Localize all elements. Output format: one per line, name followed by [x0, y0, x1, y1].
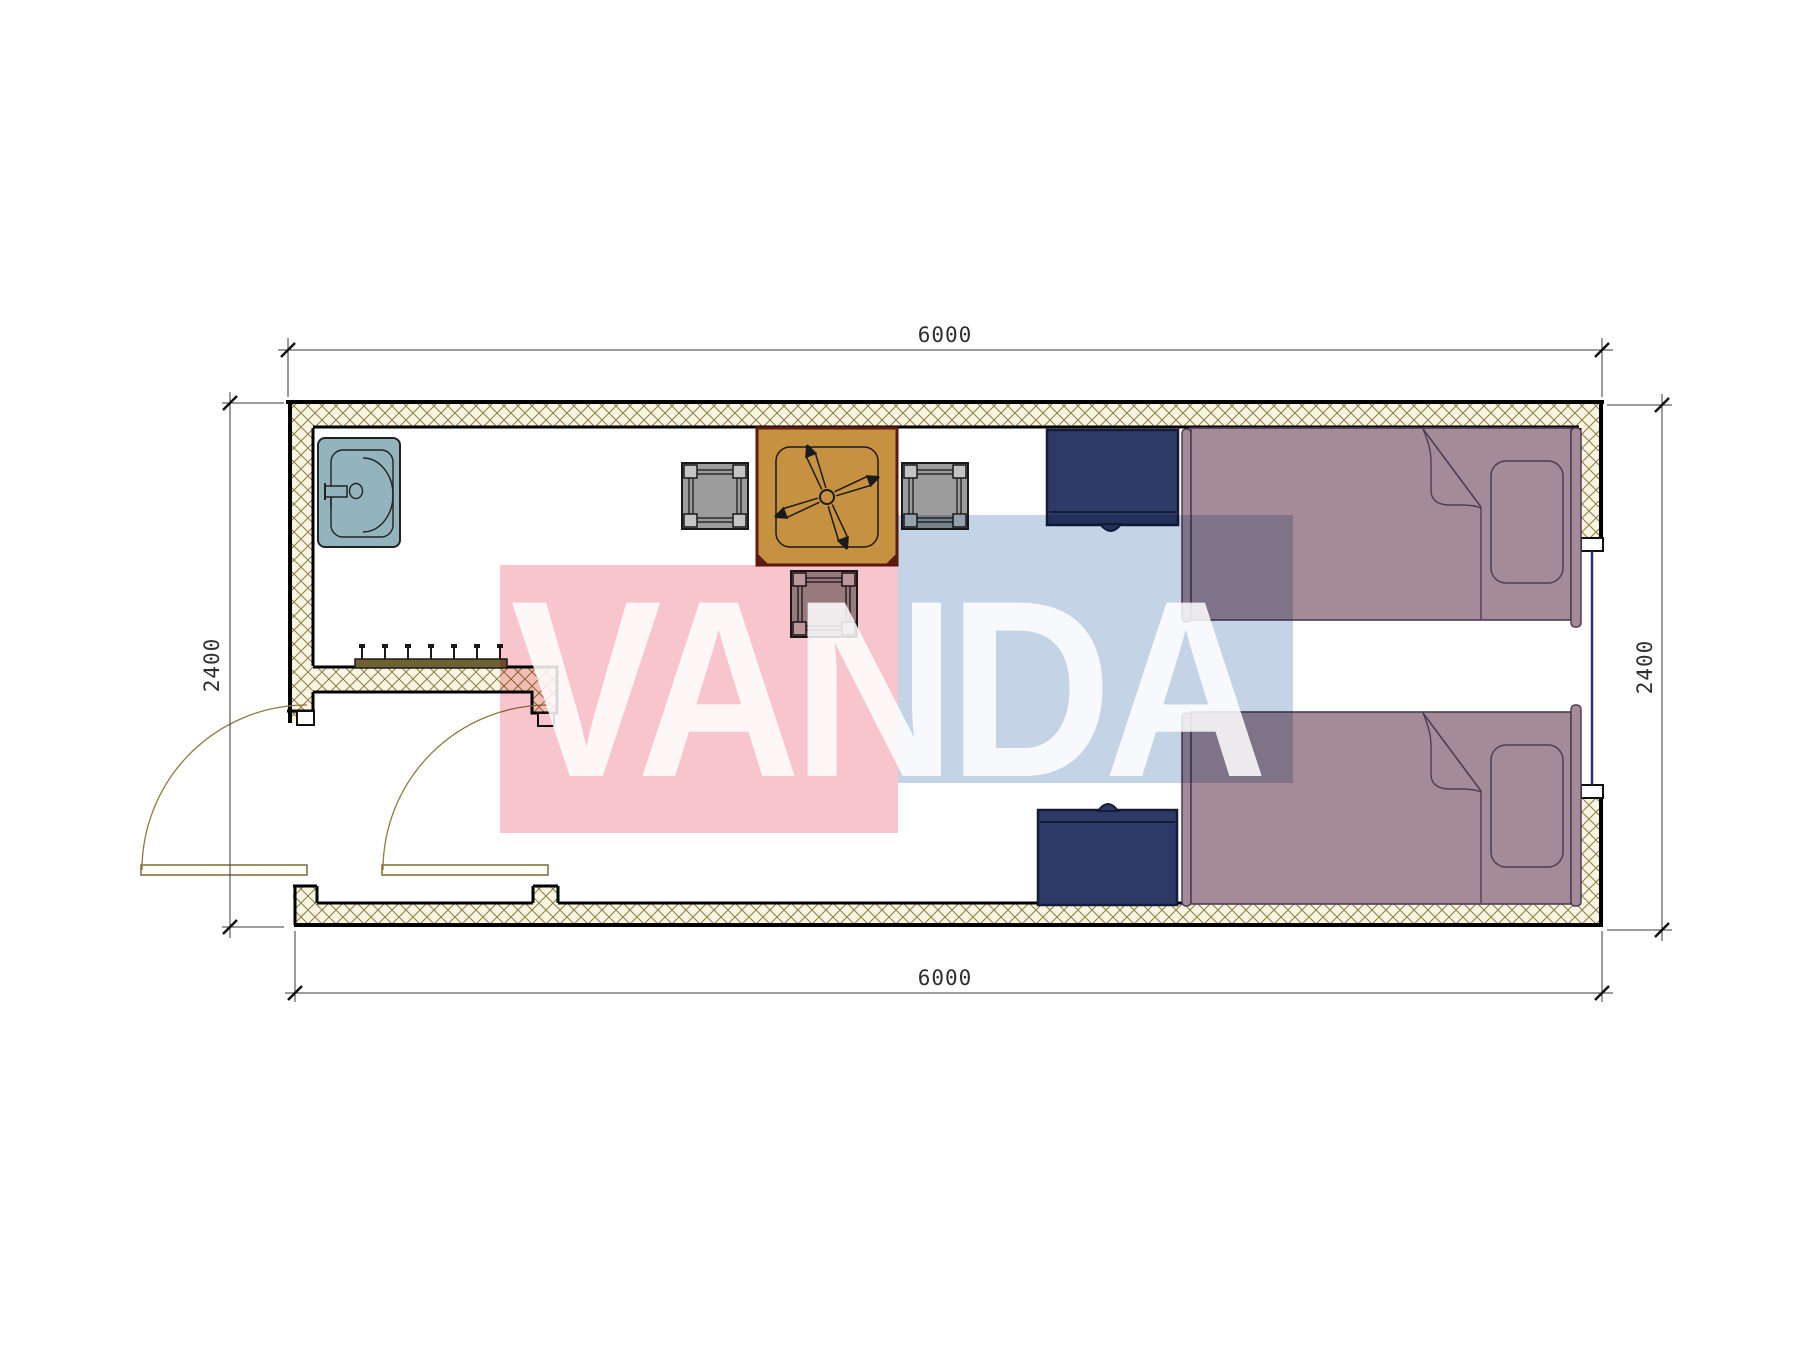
- dim-label-top: 6000: [918, 323, 973, 347]
- dim-label-bottom: 6000: [918, 966, 973, 990]
- chair-left: [682, 463, 748, 529]
- pillow-top-bed: [1491, 461, 1563, 583]
- dimension-right: 2400: [1607, 394, 1672, 941]
- dimension-left: 2400: [200, 392, 284, 938]
- dimension-top: 6000: [278, 323, 1613, 397]
- entry-door-left-wall: [141, 705, 307, 875]
- floorplan-page: 6000 6000 2400: [0, 0, 1800, 1350]
- dim-label-left: 2400: [200, 638, 224, 693]
- coat-hook-rail: [355, 644, 507, 668]
- dim-label-right: 2400: [1633, 640, 1657, 695]
- window-right-wall: [1581, 538, 1603, 798]
- pillow-bottom-bed: [1491, 745, 1563, 867]
- dimension-bottom: 6000: [285, 931, 1613, 1002]
- watermark-text: VANDA: [521, 563, 1250, 815]
- wash-basin: [318, 438, 400, 547]
